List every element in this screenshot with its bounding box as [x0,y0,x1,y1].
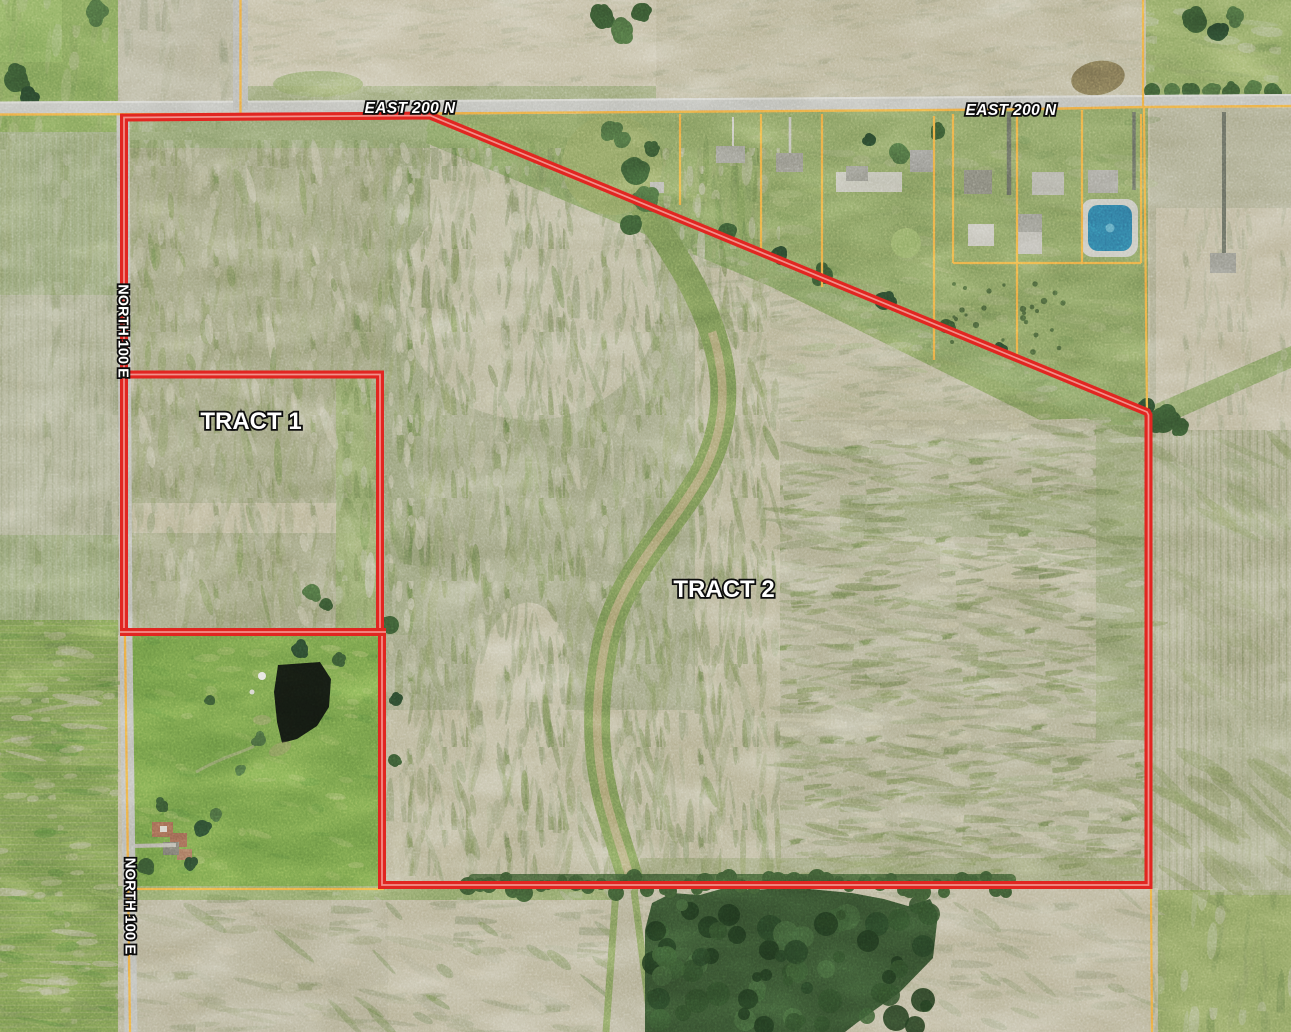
svg-text:EAST 200 N: EAST 200 N [965,102,1056,119]
svg-text:NORTH 100 E: NORTH 100 E [115,284,131,378]
svg-text:NORTH 100 E: NORTH 100 E [122,858,139,955]
svg-text:TRACT 2: TRACT 2 [673,576,774,603]
svg-text:TRACT 1: TRACT 1 [200,408,301,435]
svg-text:EAST 200 N: EAST 200 N [364,100,455,117]
